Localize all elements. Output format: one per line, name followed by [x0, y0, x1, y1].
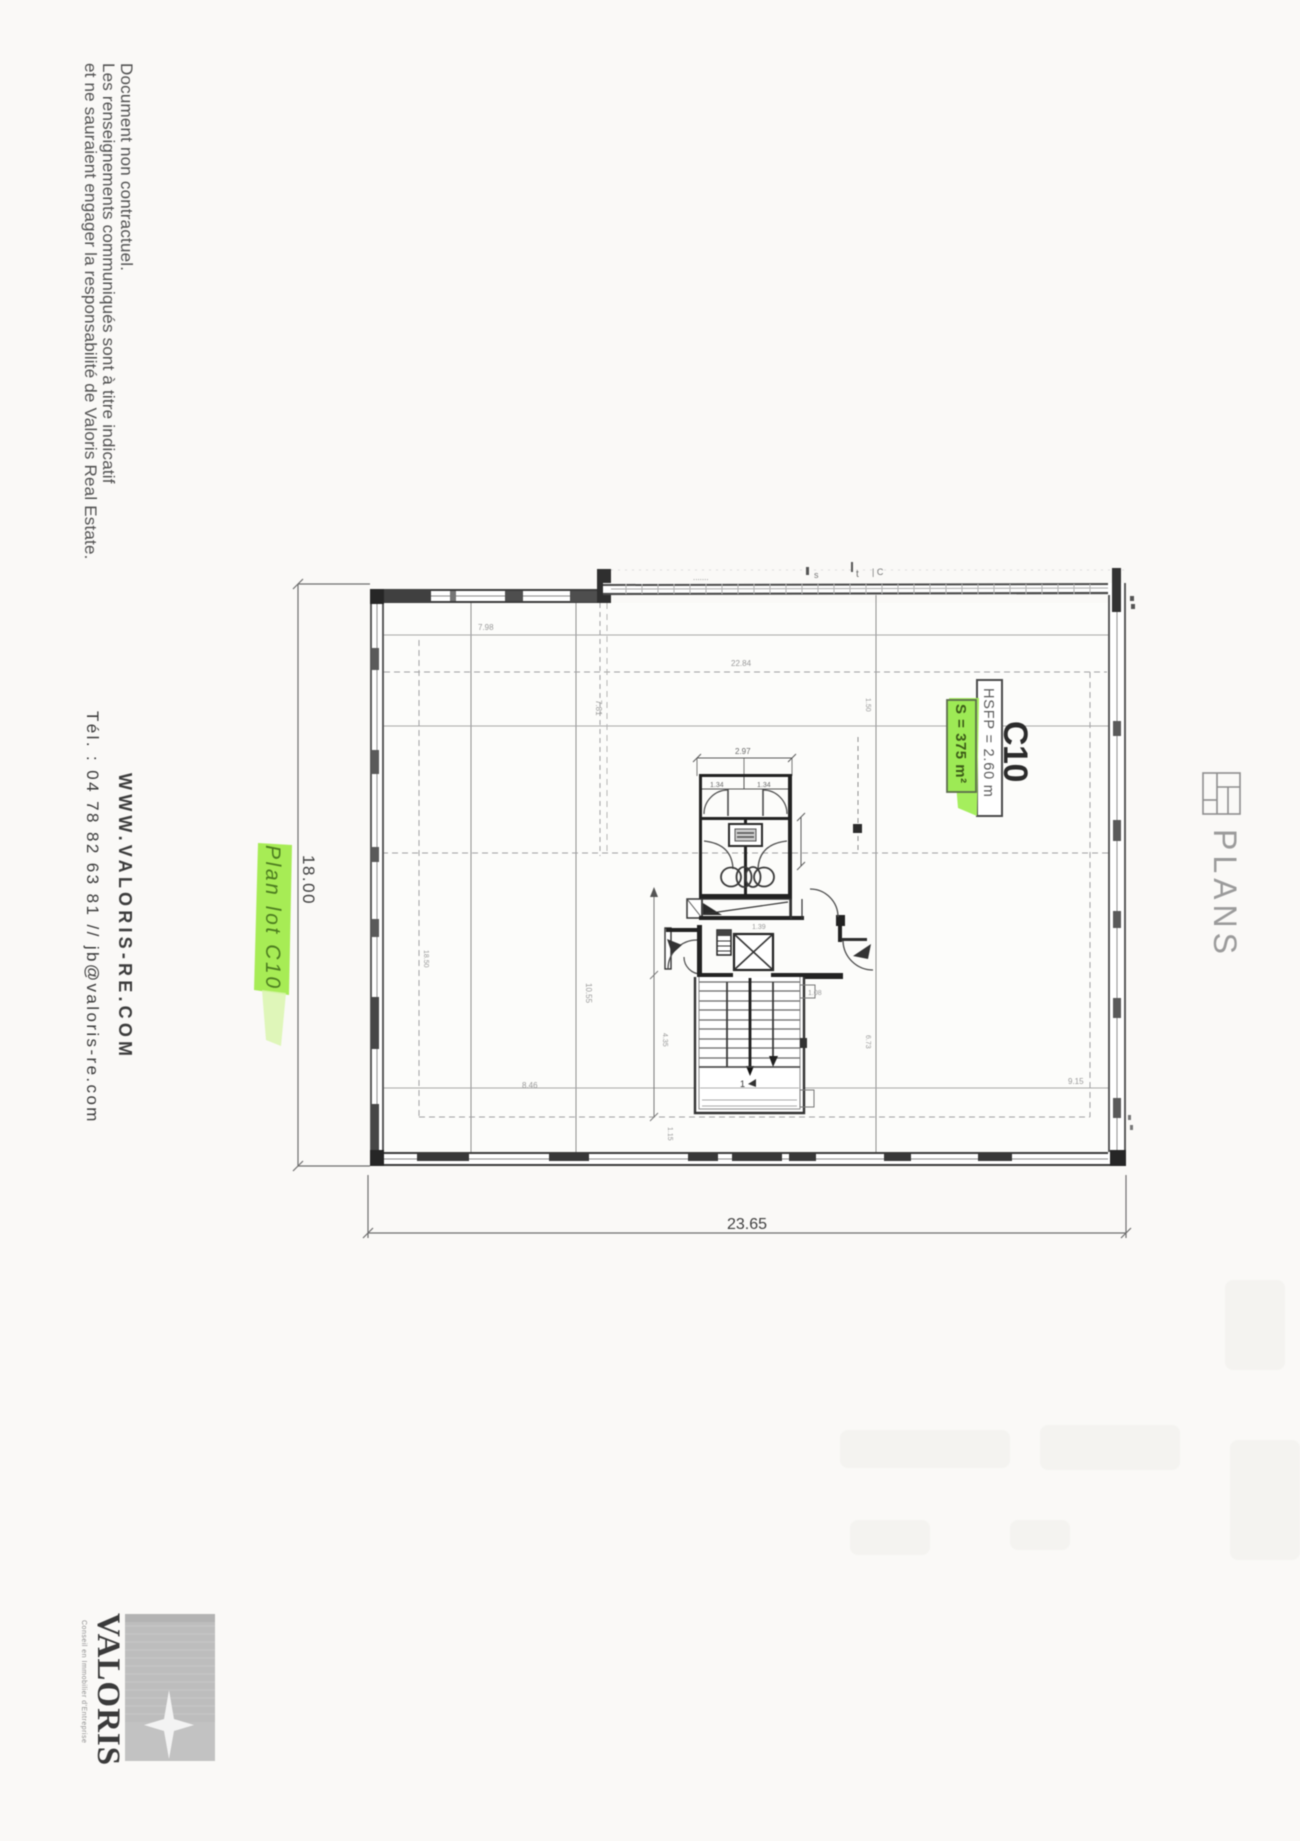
svg-text:1.15: 1.15: [666, 1127, 673, 1141]
svg-text:2.97: 2.97: [735, 747, 751, 756]
svg-text:Plan lot C10: Plan lot C10: [261, 845, 284, 991]
svg-text:Conseil en Immobilier d'Entrep: Conseil en Immobilier d'Entreprise: [80, 1620, 87, 1743]
svg-text:PLANS: PLANS: [1207, 829, 1243, 959]
svg-text:| C: | C: [872, 567, 884, 577]
svg-text:Tél. : 04 78 82 63 81 // jb@va: Tél. : 04 78 82 63 81 // jb@valoris-re.c…: [83, 711, 102, 1124]
svg-text:HSFP = 2.60 m: HSFP = 2.60 m: [980, 688, 996, 798]
svg-text:10.55: 10.55: [584, 983, 593, 1004]
svg-text:7.98: 7.98: [478, 623, 494, 632]
svg-text:S = 375 m²: S = 375 m²: [952, 704, 969, 784]
svg-text:Les renseignements communiqués: Les renseignements communiqués sont à ti…: [99, 63, 118, 484]
svg-text:1.34: 1.34: [757, 782, 771, 789]
svg-text:Document non contractuel.: Document non contractuel.: [117, 63, 136, 271]
svg-text:t: t: [856, 569, 859, 580]
svg-text:9.15: 9.15: [1068, 1077, 1084, 1086]
svg-text:WWW.VALORIS-RE.COM: WWW.VALORIS-RE.COM: [115, 773, 135, 1060]
svg-text:.......: .......: [693, 573, 709, 582]
svg-text:22.84: 22.84: [731, 659, 752, 668]
svg-text:7.81: 7.81: [594, 700, 603, 716]
svg-text:1.08: 1.08: [808, 990, 822, 997]
svg-text:4.35: 4.35: [661, 1033, 668, 1047]
svg-text:s: s: [814, 570, 819, 580]
svg-text:1.34: 1.34: [710, 782, 724, 789]
svg-text:18.50: 18.50: [422, 950, 429, 968]
svg-text:1.39: 1.39: [752, 924, 766, 931]
svg-text:6.73: 6.73: [864, 1035, 871, 1049]
svg-text:8.46: 8.46: [522, 1081, 538, 1090]
svg-text:1: 1: [740, 1079, 745, 1089]
svg-text:1.50: 1.50: [864, 698, 871, 712]
svg-text:23.65: 23.65: [727, 1216, 767, 1233]
svg-text:et ne sauraient engager la res: et ne sauraient engager la responsabilit…: [81, 63, 100, 560]
svg-text:VALORIS: VALORIS: [90, 1613, 126, 1766]
svg-text:18.00: 18.00: [299, 855, 318, 905]
